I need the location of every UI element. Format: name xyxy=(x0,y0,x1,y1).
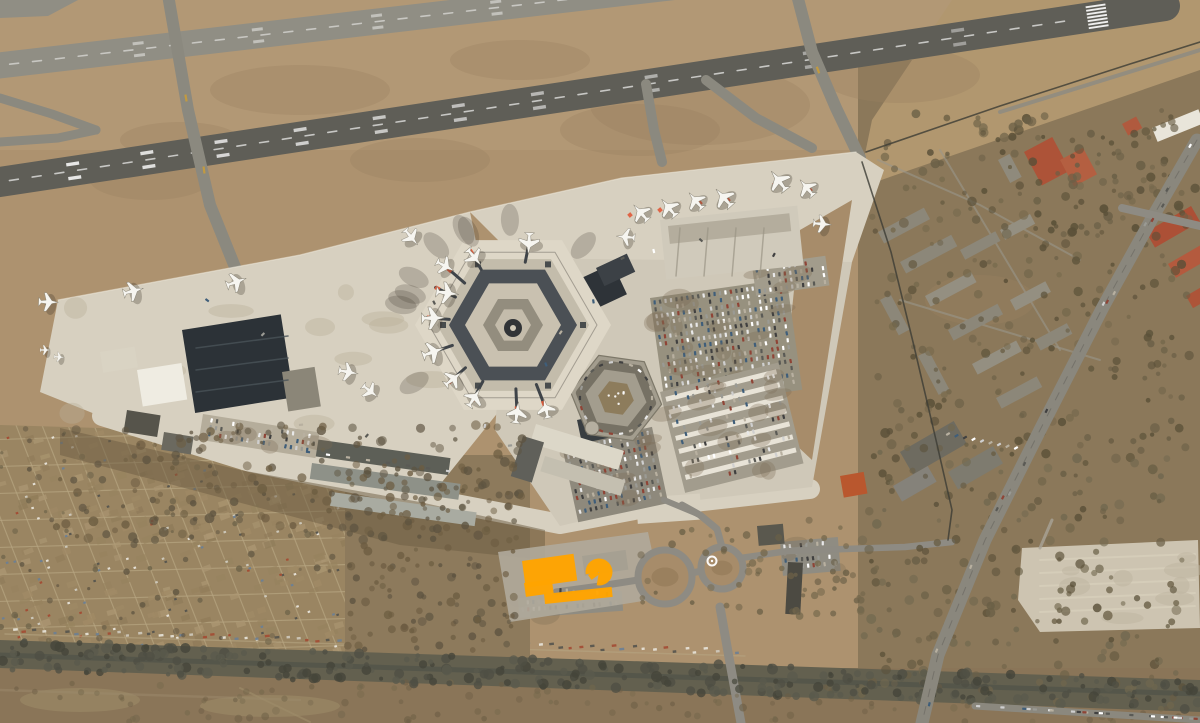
tree xyxy=(694,713,701,720)
tree xyxy=(1034,497,1042,505)
car xyxy=(669,333,672,337)
car xyxy=(1022,708,1026,710)
tree xyxy=(506,537,512,543)
car xyxy=(1189,717,1193,719)
tree xyxy=(873,228,878,233)
dirt-patch xyxy=(450,40,590,80)
tree xyxy=(1168,618,1175,625)
tree xyxy=(914,282,920,288)
tree xyxy=(435,711,441,717)
tree xyxy=(952,535,961,544)
tree xyxy=(72,425,81,434)
tree xyxy=(1101,649,1107,655)
car xyxy=(303,433,306,437)
tree xyxy=(505,503,512,510)
tree xyxy=(1034,210,1041,217)
tree xyxy=(1054,224,1059,229)
tree xyxy=(533,691,541,699)
tree xyxy=(876,627,882,633)
tree xyxy=(354,641,362,649)
tree xyxy=(399,699,404,704)
tree xyxy=(112,527,118,533)
tree xyxy=(240,698,246,704)
tree xyxy=(400,624,408,632)
tree xyxy=(466,528,470,532)
tree xyxy=(326,508,332,514)
tree xyxy=(75,534,79,538)
canal-tree xyxy=(562,680,572,690)
canal-tree xyxy=(414,658,418,662)
canal-garden-shed xyxy=(315,640,319,643)
tree xyxy=(945,599,951,605)
tree xyxy=(1033,226,1038,231)
tree xyxy=(1035,179,1042,186)
tree xyxy=(955,524,959,528)
canal-tree xyxy=(104,654,110,660)
tree xyxy=(419,465,424,470)
tree xyxy=(1028,503,1036,511)
canal-tree xyxy=(528,655,537,664)
tree xyxy=(1179,190,1185,196)
tree xyxy=(94,460,101,467)
tree xyxy=(351,634,357,640)
tree xyxy=(645,701,649,705)
tree xyxy=(26,623,32,629)
tree xyxy=(969,335,977,343)
car xyxy=(257,440,260,444)
tree xyxy=(208,464,212,468)
tree xyxy=(261,712,269,720)
tree xyxy=(953,209,961,217)
tree xyxy=(861,632,868,639)
canal-tree xyxy=(428,659,433,664)
tree xyxy=(1109,651,1119,661)
tree xyxy=(1130,438,1136,444)
tree xyxy=(338,711,346,719)
tree xyxy=(481,638,485,642)
tree xyxy=(35,474,42,481)
tree xyxy=(153,443,157,447)
tree xyxy=(464,466,473,475)
tree xyxy=(190,518,197,525)
tree xyxy=(510,613,515,618)
car xyxy=(813,281,816,285)
tree xyxy=(869,559,874,564)
tree xyxy=(511,518,517,524)
tree xyxy=(423,506,428,511)
tree xyxy=(1112,174,1117,179)
canal-tree xyxy=(774,683,781,690)
tree xyxy=(425,517,429,521)
tree xyxy=(999,448,1003,452)
tree xyxy=(668,540,676,548)
canal-tree xyxy=(74,659,80,665)
tree xyxy=(916,412,922,418)
canal-tree xyxy=(1074,677,1079,682)
tree xyxy=(1066,328,1070,332)
tree xyxy=(1151,684,1157,690)
tree xyxy=(1086,476,1092,482)
canal-tree xyxy=(50,640,61,651)
tree xyxy=(1010,452,1015,457)
tree xyxy=(1013,627,1019,633)
tree xyxy=(813,610,820,617)
tree xyxy=(87,472,94,479)
tree xyxy=(409,628,414,633)
tree xyxy=(895,423,903,431)
tree xyxy=(881,153,890,162)
tree xyxy=(84,509,89,514)
car xyxy=(741,295,744,299)
canal-tree xyxy=(167,643,177,653)
canal-tree xyxy=(168,664,173,669)
car xyxy=(759,300,762,304)
tree xyxy=(151,536,159,544)
tree xyxy=(1120,215,1126,221)
car xyxy=(719,333,721,337)
tree xyxy=(945,154,950,159)
tree xyxy=(1022,510,1029,517)
tree xyxy=(1095,160,1100,165)
tree xyxy=(1024,234,1028,238)
tree xyxy=(821,535,827,541)
tree xyxy=(438,563,442,567)
tree xyxy=(94,690,100,696)
tree xyxy=(948,424,955,431)
car xyxy=(579,396,581,400)
tree xyxy=(173,589,180,596)
car xyxy=(677,311,680,315)
tree xyxy=(361,597,370,606)
tree xyxy=(937,240,943,246)
tree xyxy=(869,214,875,220)
tree xyxy=(386,481,395,490)
canal-tree xyxy=(290,677,296,683)
car xyxy=(756,321,758,325)
tree xyxy=(32,689,38,695)
tree xyxy=(1112,366,1119,373)
tree xyxy=(1175,424,1184,433)
tree xyxy=(960,700,965,705)
tree xyxy=(197,598,202,603)
tree xyxy=(1006,642,1011,647)
canal-garden-shed xyxy=(716,650,720,653)
car xyxy=(721,305,724,309)
tree xyxy=(319,458,325,464)
tree xyxy=(1162,263,1166,267)
canal-tree xyxy=(850,689,858,697)
tree xyxy=(128,702,134,708)
tree xyxy=(68,616,74,622)
tree xyxy=(937,518,941,522)
canal-tree xyxy=(122,656,127,661)
canal-garden-shed xyxy=(159,634,164,637)
canal-tree xyxy=(365,655,369,659)
tree xyxy=(344,642,352,650)
tree xyxy=(817,588,825,596)
canal-tree xyxy=(1161,682,1166,687)
canal-garden-shed xyxy=(274,636,279,639)
tree xyxy=(892,454,900,462)
tree xyxy=(386,493,395,502)
tree xyxy=(1136,161,1146,171)
tree xyxy=(909,468,915,474)
tree xyxy=(637,551,644,558)
tree xyxy=(23,426,28,431)
tree xyxy=(832,586,837,591)
tree xyxy=(297,473,306,482)
canal-tree xyxy=(973,677,982,686)
tree xyxy=(1019,210,1029,220)
tree xyxy=(1016,181,1024,189)
tree xyxy=(1041,135,1045,139)
tree xyxy=(1065,523,1074,532)
tree xyxy=(270,633,275,638)
canal-tree xyxy=(106,663,111,668)
tree xyxy=(353,574,360,581)
car xyxy=(784,324,787,328)
canal-tree xyxy=(446,680,452,686)
tree xyxy=(518,493,525,500)
tree xyxy=(69,681,74,686)
tree xyxy=(229,438,233,442)
car xyxy=(767,355,770,359)
tree xyxy=(934,502,939,507)
tree xyxy=(440,505,446,511)
tree xyxy=(1112,178,1118,184)
canal-tree xyxy=(832,683,840,691)
canal-tree xyxy=(1112,681,1119,688)
canal-tree xyxy=(379,677,383,681)
tree xyxy=(506,491,510,495)
tree xyxy=(357,690,364,697)
tree xyxy=(1152,127,1156,131)
canal-tree xyxy=(172,656,181,665)
tree xyxy=(61,519,70,528)
tree xyxy=(407,471,413,477)
tree xyxy=(1181,443,1189,451)
vertex-block xyxy=(545,261,551,267)
car xyxy=(758,289,761,293)
tree xyxy=(745,568,753,576)
canal-tree xyxy=(44,663,53,672)
canal-tree xyxy=(84,670,89,675)
tree xyxy=(1041,291,1048,298)
tree xyxy=(1002,229,1012,239)
canal-garden-shed xyxy=(286,636,290,639)
tree xyxy=(850,572,856,578)
tree xyxy=(872,519,882,529)
canal-garden-shed xyxy=(147,633,151,636)
tree xyxy=(238,511,244,517)
tree xyxy=(510,593,518,601)
tree xyxy=(930,242,934,246)
tree xyxy=(435,641,443,649)
canal-tree xyxy=(695,670,701,676)
tree xyxy=(1028,157,1037,166)
tree xyxy=(157,456,164,463)
canal-garden-shed xyxy=(693,651,697,654)
tree xyxy=(334,470,341,477)
tree xyxy=(319,423,327,431)
tree xyxy=(962,191,967,196)
canal-tree xyxy=(309,648,316,655)
tree xyxy=(159,527,169,537)
tree xyxy=(74,493,78,497)
canal-tree xyxy=(259,652,267,660)
tree xyxy=(388,612,394,618)
tree xyxy=(468,556,473,561)
tree xyxy=(1048,345,1054,351)
garage-dot xyxy=(614,395,616,397)
tree xyxy=(1109,575,1113,579)
tree xyxy=(1156,538,1165,547)
car xyxy=(744,316,747,320)
tree xyxy=(1087,717,1093,723)
car xyxy=(279,443,282,447)
tree xyxy=(471,420,481,430)
tree xyxy=(283,425,288,430)
tree xyxy=(887,273,897,283)
canal-tree xyxy=(686,686,695,695)
car xyxy=(822,541,824,545)
tree xyxy=(329,490,335,496)
car xyxy=(816,542,818,546)
tree xyxy=(886,658,891,663)
tree xyxy=(28,569,31,572)
tree xyxy=(27,438,32,443)
tree xyxy=(348,424,357,433)
tree xyxy=(1061,239,1070,248)
canal-tree xyxy=(1006,670,1015,679)
tree xyxy=(724,603,730,609)
canal-tree xyxy=(837,692,843,698)
tree xyxy=(1060,670,1070,680)
tree xyxy=(507,620,512,625)
tree xyxy=(893,634,897,638)
tree xyxy=(1109,637,1115,643)
tree xyxy=(1078,199,1084,205)
car xyxy=(709,342,712,346)
tree xyxy=(1087,130,1095,138)
tree xyxy=(1190,184,1199,193)
tree xyxy=(1061,514,1068,521)
car xyxy=(676,382,679,386)
tree xyxy=(893,707,897,711)
tree xyxy=(499,682,504,687)
tree xyxy=(1,555,5,559)
tree xyxy=(942,398,947,403)
canal-tree xyxy=(866,671,874,679)
tree xyxy=(62,433,65,436)
tree xyxy=(377,513,383,519)
car xyxy=(292,431,295,435)
tree xyxy=(1084,230,1090,236)
canal-tree xyxy=(202,668,213,679)
tree xyxy=(185,710,191,716)
tree xyxy=(380,469,388,477)
tree xyxy=(1044,464,1053,473)
tree xyxy=(1020,411,1027,418)
tree xyxy=(1137,186,1145,194)
tree xyxy=(1150,165,1155,170)
car xyxy=(716,313,719,317)
tree xyxy=(815,560,821,566)
tree xyxy=(119,617,122,620)
tree xyxy=(359,474,367,482)
tree xyxy=(988,554,996,562)
tree xyxy=(206,482,213,489)
tree xyxy=(433,524,442,533)
tree xyxy=(1178,394,1184,400)
tree xyxy=(960,323,966,329)
tree xyxy=(231,499,236,504)
tree xyxy=(348,611,354,617)
tree xyxy=(743,531,751,539)
tree xyxy=(155,595,161,601)
tree xyxy=(1077,490,1083,496)
tree xyxy=(1185,351,1194,360)
tree xyxy=(275,521,284,530)
tree xyxy=(788,573,795,580)
tree xyxy=(438,601,443,606)
tree xyxy=(998,470,1003,475)
tree xyxy=(943,115,950,122)
tree xyxy=(1099,178,1107,186)
tree xyxy=(1061,231,1067,237)
tree xyxy=(1144,601,1151,608)
canal-tree xyxy=(1145,695,1152,702)
tree xyxy=(392,458,397,463)
tree xyxy=(27,467,32,472)
tree xyxy=(1115,149,1122,156)
tree xyxy=(196,447,203,454)
tree xyxy=(169,505,176,512)
tree xyxy=(1084,434,1091,441)
car xyxy=(715,306,717,310)
tree xyxy=(1060,471,1066,477)
tree xyxy=(942,367,946,371)
tree xyxy=(259,689,264,694)
tree xyxy=(414,548,418,552)
tree xyxy=(1116,516,1124,524)
tree xyxy=(465,692,473,700)
tree xyxy=(309,684,314,689)
canal-tree xyxy=(1055,699,1066,710)
tree xyxy=(707,584,714,591)
tree xyxy=(986,602,994,610)
tree xyxy=(1020,371,1025,376)
tree xyxy=(1074,473,1078,477)
tree xyxy=(1075,559,1085,569)
canal-tree xyxy=(712,673,720,681)
tree xyxy=(1096,286,1104,294)
tree xyxy=(381,535,387,541)
canal-tree xyxy=(855,684,859,688)
canal-tree xyxy=(88,652,94,658)
tree xyxy=(916,637,922,643)
tree xyxy=(219,636,223,640)
canal-tree xyxy=(145,651,155,661)
tree xyxy=(880,679,889,688)
tree xyxy=(848,696,854,702)
tree xyxy=(877,450,882,455)
tree xyxy=(257,484,267,494)
tree xyxy=(950,704,957,711)
canal-tree xyxy=(217,654,225,662)
car xyxy=(778,360,781,364)
canal-tree xyxy=(1094,679,1099,684)
